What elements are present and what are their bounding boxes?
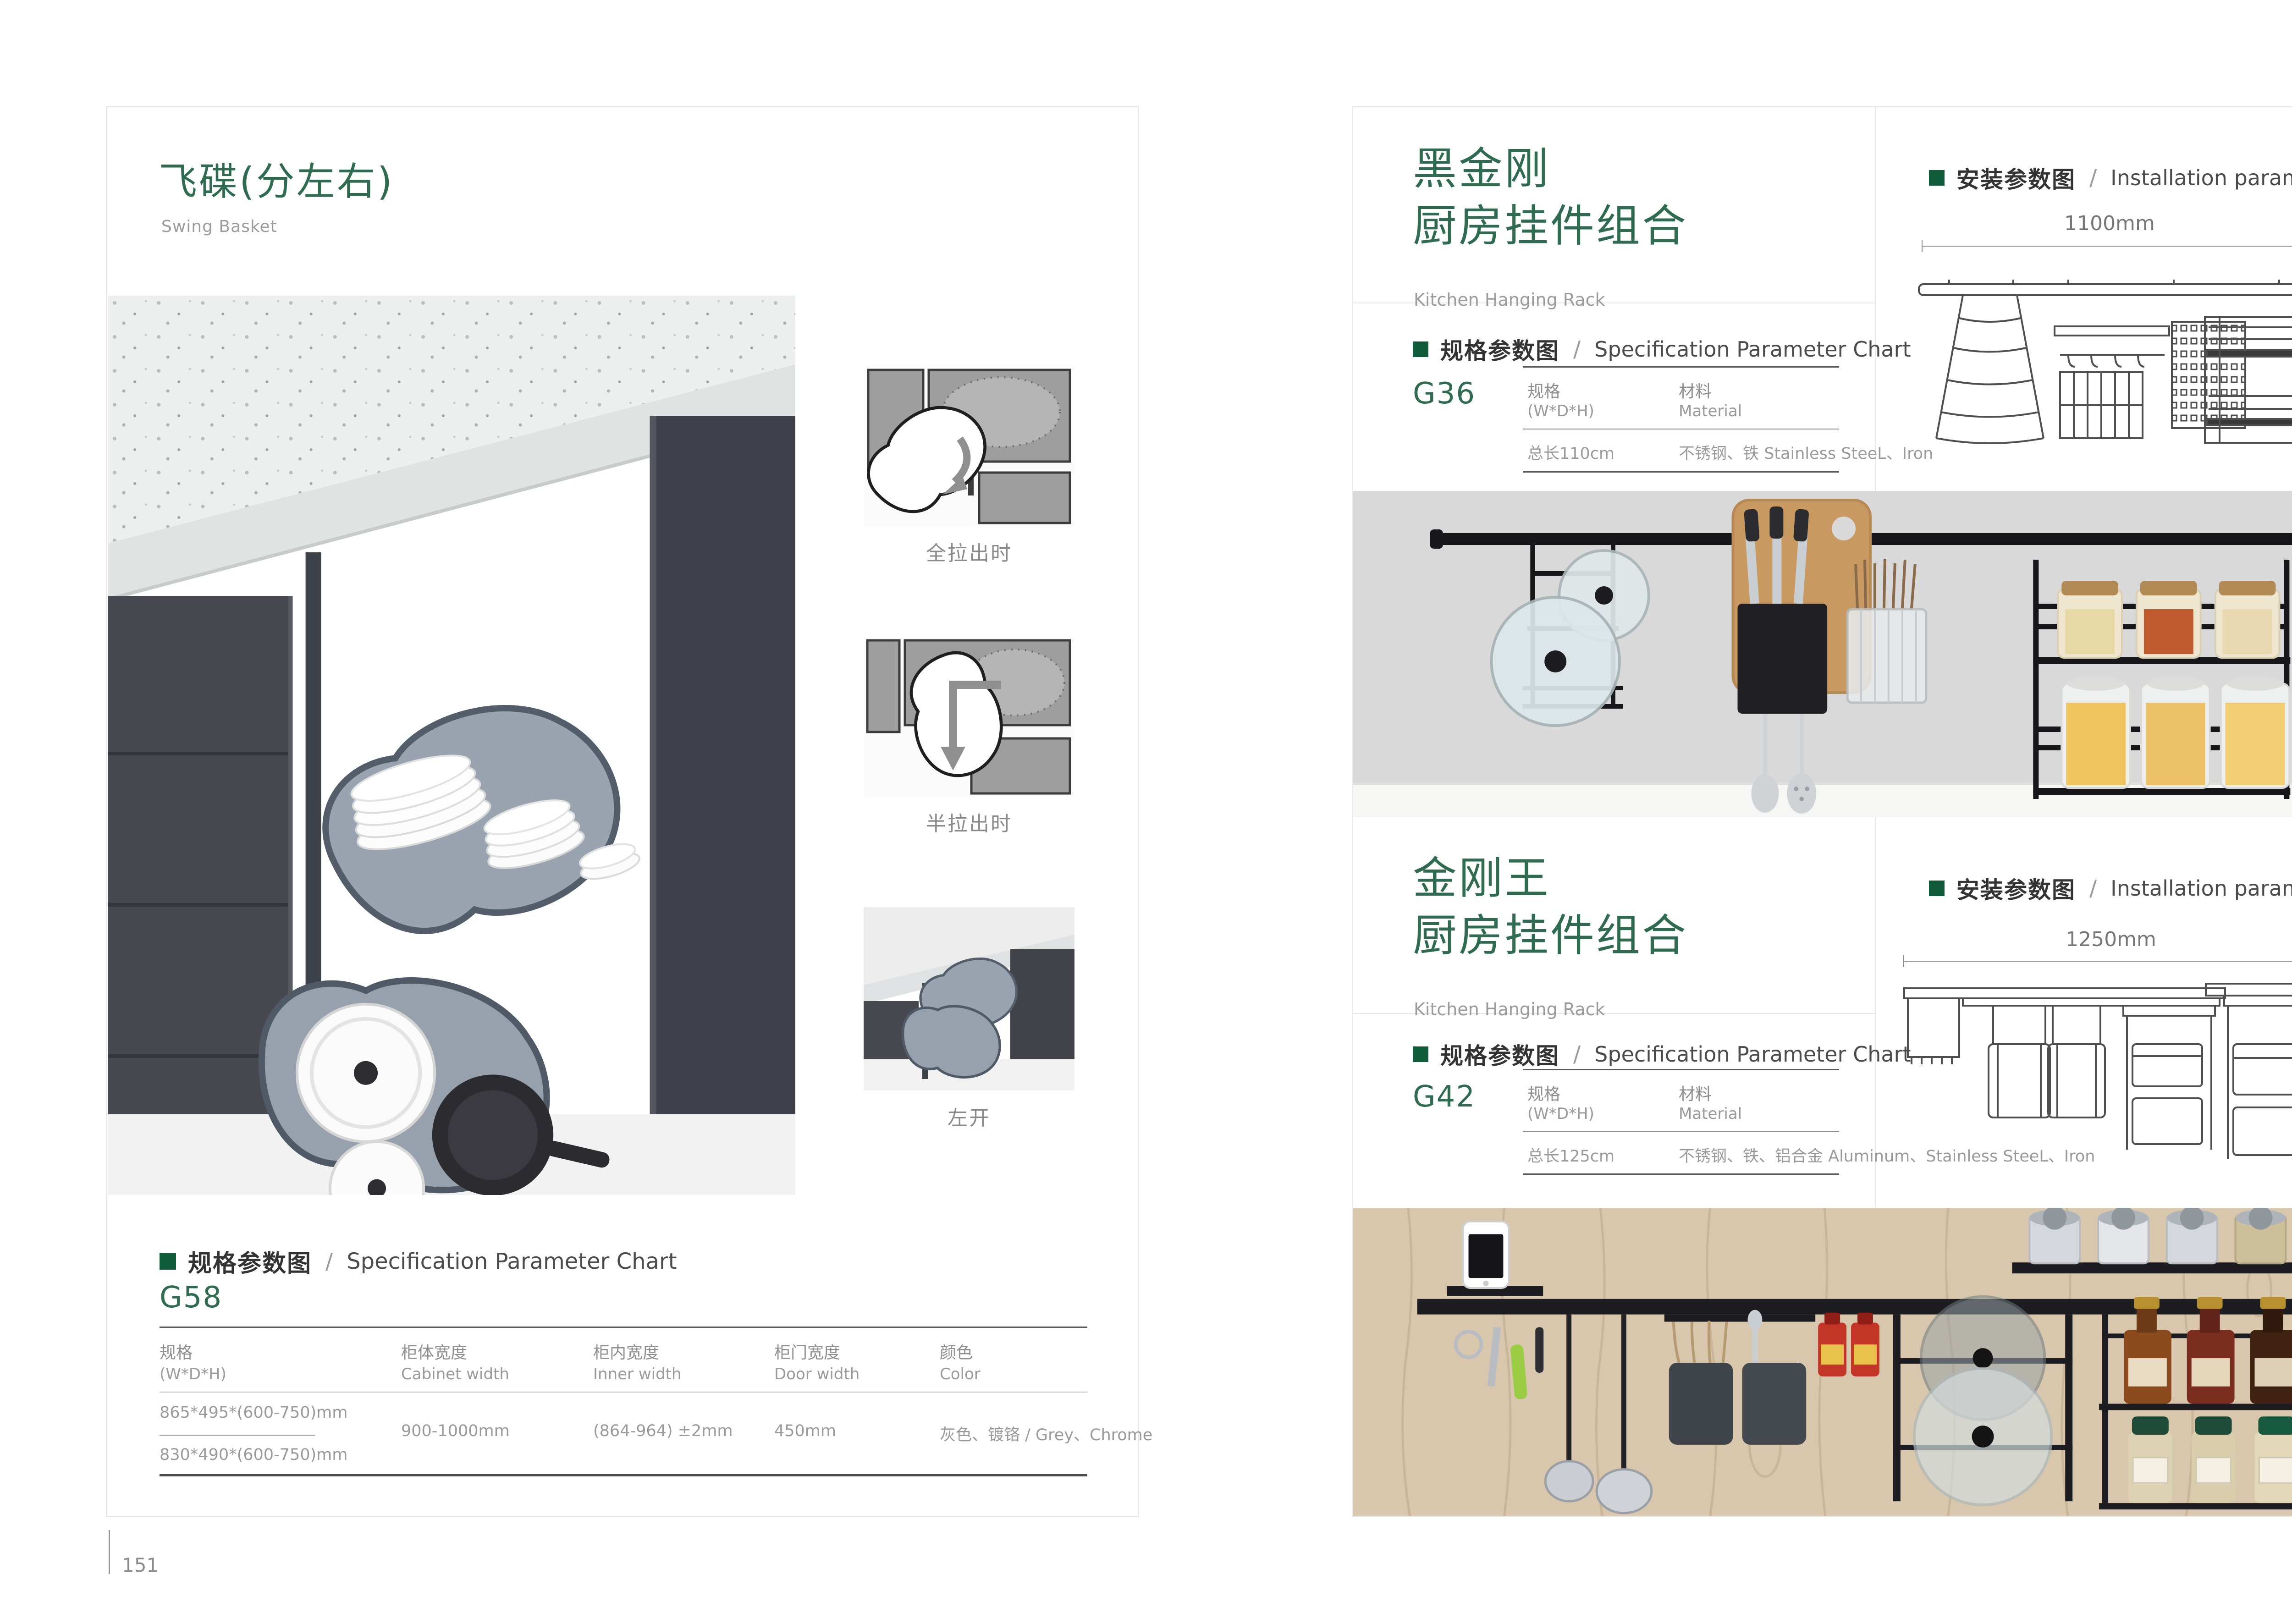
table-bottom-rule — [160, 1474, 1087, 1476]
page-number-tick-left — [109, 1530, 110, 1574]
g36-title-cn: 黑金刚 厨房挂件组合 — [1413, 140, 1688, 255]
install-header-separator: / — [2089, 875, 2097, 901]
col-header-en: Cabinet width — [401, 1365, 509, 1383]
figure-caption: 全拉出时 — [859, 537, 1079, 566]
cell-inner-width: (864-964) ±2mm — [593, 1422, 733, 1440]
table-bottom-rule — [1523, 471, 1839, 473]
col-header-en: Material — [1679, 1105, 1742, 1123]
page-number-left: 151 — [122, 1554, 159, 1576]
col-header-en: Color — [940, 1365, 981, 1383]
col-header-cn: 颜色 — [940, 1339, 973, 1363]
cell-cabinet-width: 900-1000mm — [401, 1422, 510, 1440]
g36-title-line2: 厨房挂件组合 — [1413, 198, 1688, 255]
cell-divider — [160, 1435, 315, 1436]
table-top-rule — [160, 1327, 1087, 1328]
figure-caption: 左开 — [859, 1101, 1079, 1131]
col-header-cn: 柜门宽度 — [774, 1339, 840, 1363]
spec-header-separator: / — [1573, 336, 1581, 362]
table-bottom-rule — [1523, 1173, 1839, 1175]
g36-width-dimension: 1100mm — [1922, 212, 2292, 235]
spec-header-en: Specification Parameter Chart — [1594, 337, 1911, 362]
g42-title-en: Kitchen Hanging Rack — [1414, 999, 1605, 1019]
diagram-half-pullout — [864, 637, 1074, 797]
model-code: G58 — [160, 1281, 222, 1315]
g36-title-line1: 黑金刚 — [1413, 140, 1688, 198]
catalog-spread: 飞碟(分左右) Swing Basket — [0, 0, 2292, 1624]
g36-title-en: Kitchen Hanging Rack — [1414, 290, 1605, 310]
cell-spec-1: 865*495*(600-750)mm — [160, 1404, 347, 1422]
figure-caption: 半拉出时 — [859, 807, 1079, 837]
col-header-en: Inner width — [593, 1365, 682, 1383]
spec-header-separator: / — [1573, 1041, 1581, 1067]
col-header-cn: 柜内宽度 — [593, 1339, 659, 1363]
install-header-cn: 安装参数图 — [1956, 872, 2076, 905]
photo-left-open — [864, 907, 1074, 1090]
spec-header-separator: / — [325, 1249, 333, 1274]
page-left: 飞碟(分左右) Swing Basket — [106, 106, 1139, 1517]
swing-basket-photo-art — [108, 296, 795, 1195]
spec-header-cn: 规格参数图 — [188, 1244, 312, 1278]
install-header-cn: 安装参数图 — [1956, 161, 2076, 194]
g42-product-photo-art — [1353, 1208, 2292, 1516]
figure-left-open: 左开 — [859, 907, 1079, 1131]
g36-product-photo — [1353, 491, 2292, 817]
table-mid-rule — [160, 1392, 1087, 1393]
section-marker-icon — [1413, 341, 1428, 357]
g42-title-line2: 厨房挂件组合 — [1413, 907, 1688, 964]
spec-header-cn: 规格参数图 — [1440, 1038, 1559, 1071]
grid-divider-vertical — [1875, 107, 1876, 491]
col-header-en: Material — [1679, 402, 1742, 420]
col-header-en: (W*D*H) — [1527, 402, 1594, 420]
figure-half-pullout: 半拉出时 — [859, 637, 1079, 837]
col-header-cn: 柜体宽度 — [401, 1339, 467, 1363]
install-header-separator: / — [2089, 165, 2097, 191]
table-top-rule — [1523, 1069, 1839, 1070]
cell-material: 不锈钢、铁、铝合金 Aluminum、Stainless SteeL、Iron — [1679, 1143, 2095, 1167]
g42-width-dimension-line — [1903, 961, 2292, 962]
g36-install-header: 安装参数图 / Installation parameters — [1929, 161, 2292, 194]
page-title-en: Swing Basket — [161, 217, 277, 236]
g42-product-photo — [1353, 1208, 2292, 1516]
g42-spec-header: 规格参数图 / Specification Parameter Chart — [1413, 1038, 1911, 1071]
install-header-en: Installation parameters — [2110, 165, 2292, 190]
cell-door-width: 450mm — [774, 1422, 836, 1440]
cell-length: 总长110cm — [1527, 440, 1614, 464]
section-marker-icon — [1929, 170, 1945, 186]
col-header-en: (W*D*H) — [160, 1365, 226, 1383]
spec-table: 规格 (W*D*H) 柜体宽度 Cabinet width 柜内宽度 Inner… — [160, 1327, 1087, 1478]
model-code: G36 — [1413, 377, 1476, 411]
g42-title-line1: 金刚王 — [1413, 850, 1688, 907]
cell-color: 灰色、镀铬 / Grey、Chrome — [940, 1422, 1152, 1445]
spec-header-en: Specification Parameter Chart — [1594, 1042, 1911, 1067]
g42-install-diagram — [1903, 975, 2292, 1163]
figure-full-pullout: 全拉出时 — [859, 366, 1079, 566]
col-header-cn: 规格 — [160, 1339, 193, 1363]
table-mid-rule — [1523, 429, 1839, 429]
table-top-rule — [1523, 366, 1839, 368]
spec-section-header: 规格参数图 / Specification Parameter Chart — [160, 1244, 677, 1278]
page-title-cn: 飞碟(分左右) — [159, 157, 394, 207]
page-right: 黑金刚 厨房挂件组合 Kitchen Hanging Rack 安装参数图 / … — [1352, 106, 2292, 1517]
g36-width-dimension-line — [1922, 246, 2292, 247]
diagram-full-pullout — [864, 366, 1074, 527]
col-header-cn: 规格 — [1527, 378, 1560, 402]
g36-install-drawing — [1917, 259, 2292, 456]
table-mid-rule — [1523, 1131, 1839, 1132]
col-header-cn: 材料 — [1679, 378, 1712, 402]
install-header-en: Installation parameters — [2110, 876, 2292, 901]
swing-basket-photo — [108, 296, 795, 1195]
section-marker-icon — [1929, 881, 1945, 896]
g42-width-dimension: 1250mm — [1903, 928, 2292, 951]
g36-product-photo-art — [1353, 491, 2292, 817]
cell-material: 不锈钢、铁 Stainless SteeL、Iron — [1679, 440, 1933, 464]
g36-install-diagram — [1917, 259, 2292, 456]
cell-spec-2: 830*490*(600-750)mm — [160, 1446, 347, 1464]
cell-length: 总长125cm — [1527, 1143, 1614, 1167]
g42-title-cn: 金刚王 厨房挂件组合 — [1413, 850, 1688, 964]
spec-header-cn: 规格参数图 — [1440, 333, 1559, 366]
spec-header-en: Specification Parameter Chart — [347, 1249, 677, 1274]
col-header-en: (W*D*H) — [1527, 1105, 1594, 1123]
col-header-cn: 材料 — [1679, 1081, 1712, 1105]
g36-spec-header: 规格参数图 / Specification Parameter Chart — [1413, 333, 1911, 366]
section-marker-icon — [1413, 1046, 1428, 1062]
model-code: G42 — [1413, 1080, 1476, 1114]
section-marker-icon — [160, 1253, 176, 1270]
col-header-cn: 规格 — [1527, 1081, 1560, 1105]
g42-install-drawing — [1903, 975, 2292, 1163]
g42-install-header: 安装参数图 / Installation parameters — [1929, 872, 2292, 905]
col-header-en: Door width — [774, 1365, 859, 1383]
